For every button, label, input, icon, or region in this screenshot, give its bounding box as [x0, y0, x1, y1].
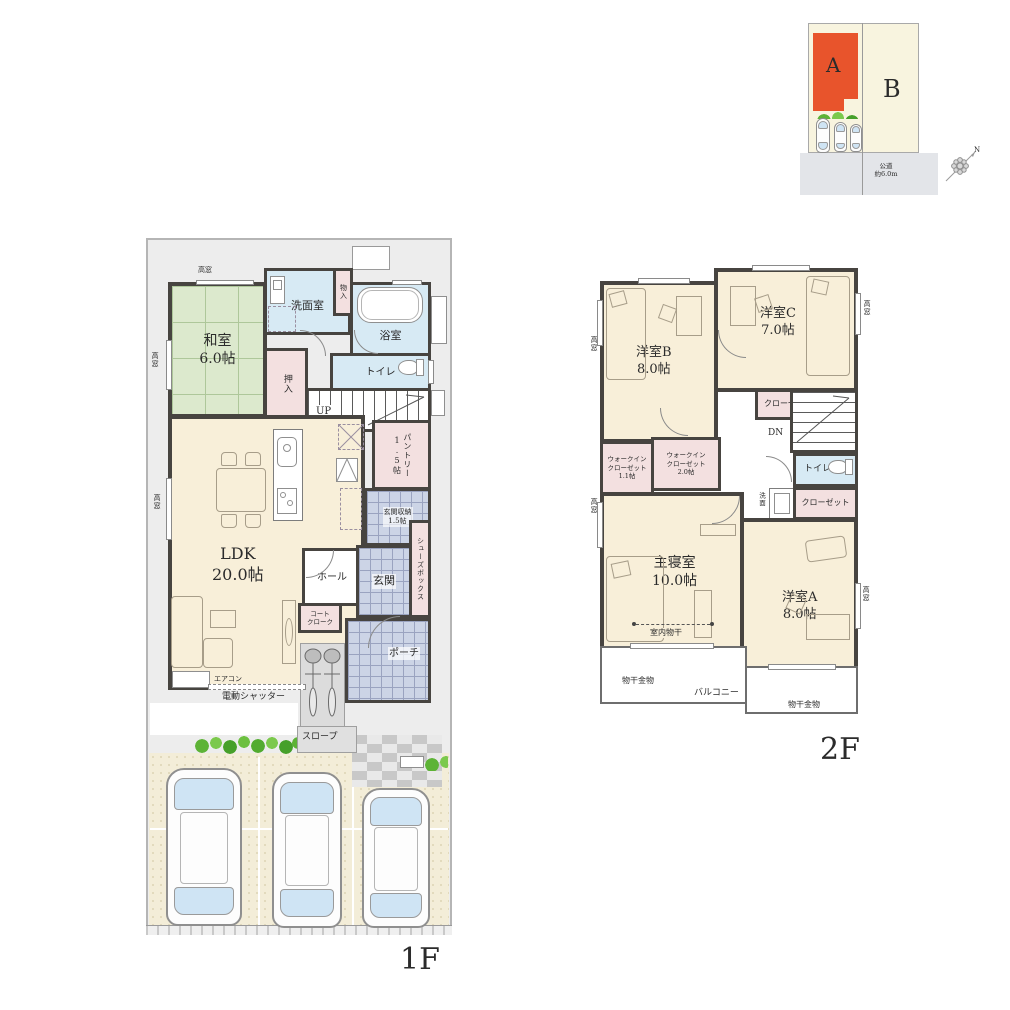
f2-desk-b: [676, 296, 702, 336]
floor2-plan: 洋室B 8.0帖 洋室C 7.0帖 クローゼット DN ウォークイン クローゼッ…: [0, 0, 1010, 1010]
f2-window: [597, 502, 603, 548]
f2-wic-1-1-label: ウォークイン クローゼット 1.1帖: [608, 455, 647, 480]
f2-desk-c: [730, 286, 756, 326]
f2-takamado-right-label: 高窓: [862, 300, 871, 316]
f2-toilet-label: トイレ: [804, 464, 831, 476]
f2-washbasin-bowl: [774, 493, 790, 514]
f2-bed-c-pillow: [811, 278, 830, 295]
f2-drying-dot: [632, 622, 636, 626]
f2-window: [855, 583, 861, 629]
f1-window: [166, 340, 172, 390]
f2-window: [630, 643, 714, 649]
f2-drying-dot: [710, 622, 714, 626]
f1-shutter-window: [208, 684, 306, 690]
f2-wic-1-1: ウォークイン クローゼット 1.1帖: [600, 441, 654, 495]
f2-drying-hardware-right-label: 物干金物: [788, 700, 820, 710]
f2-indoor-drying-label: 室内物干: [648, 628, 684, 638]
f2-closet-2-label: クローゼット: [802, 498, 850, 508]
f2-floor-label: 2F: [820, 730, 860, 769]
f2-takamado-right2-label: 高窓: [861, 586, 870, 602]
f1-window: [166, 478, 172, 540]
f2-balcony-label: バルコニー: [692, 688, 741, 700]
f2-window: [638, 278, 690, 284]
f2-stairs: [790, 389, 858, 453]
f1-window: [196, 280, 254, 285]
f2-desk-a: [806, 614, 850, 640]
f2-window: [597, 300, 603, 346]
f1-window: [428, 360, 434, 384]
f2-bed-a: [700, 524, 736, 536]
f2-dn-label: DN: [766, 428, 785, 440]
f2-yoshitsu-c-label: 洋室C 7.0帖: [760, 306, 796, 340]
f2-window: [752, 265, 810, 271]
f2-stairs-arrow: [793, 392, 855, 450]
f2-drying-hardware-left-label: 物干金物: [622, 676, 654, 686]
f2-window: [768, 664, 836, 670]
f2-window: [855, 293, 861, 335]
f1-window: [392, 280, 422, 285]
f2-dresser-master: [694, 590, 712, 638]
f2-indoor-drying-line: [636, 624, 710, 625]
f2-senmen-label: 洗面: [757, 492, 765, 507]
f2-toilet-icon-tank: [845, 459, 853, 475]
f2-closet-2: クローゼット: [793, 487, 858, 520]
floor-plan-page: A B 公道 約6.0m N: [0, 0, 1010, 1010]
f2-wic-2-0-label: ウォークイン クローゼット 2.0帖: [667, 451, 706, 476]
f2-wic-2-0: ウォークイン クローゼット 2.0帖: [651, 437, 721, 491]
